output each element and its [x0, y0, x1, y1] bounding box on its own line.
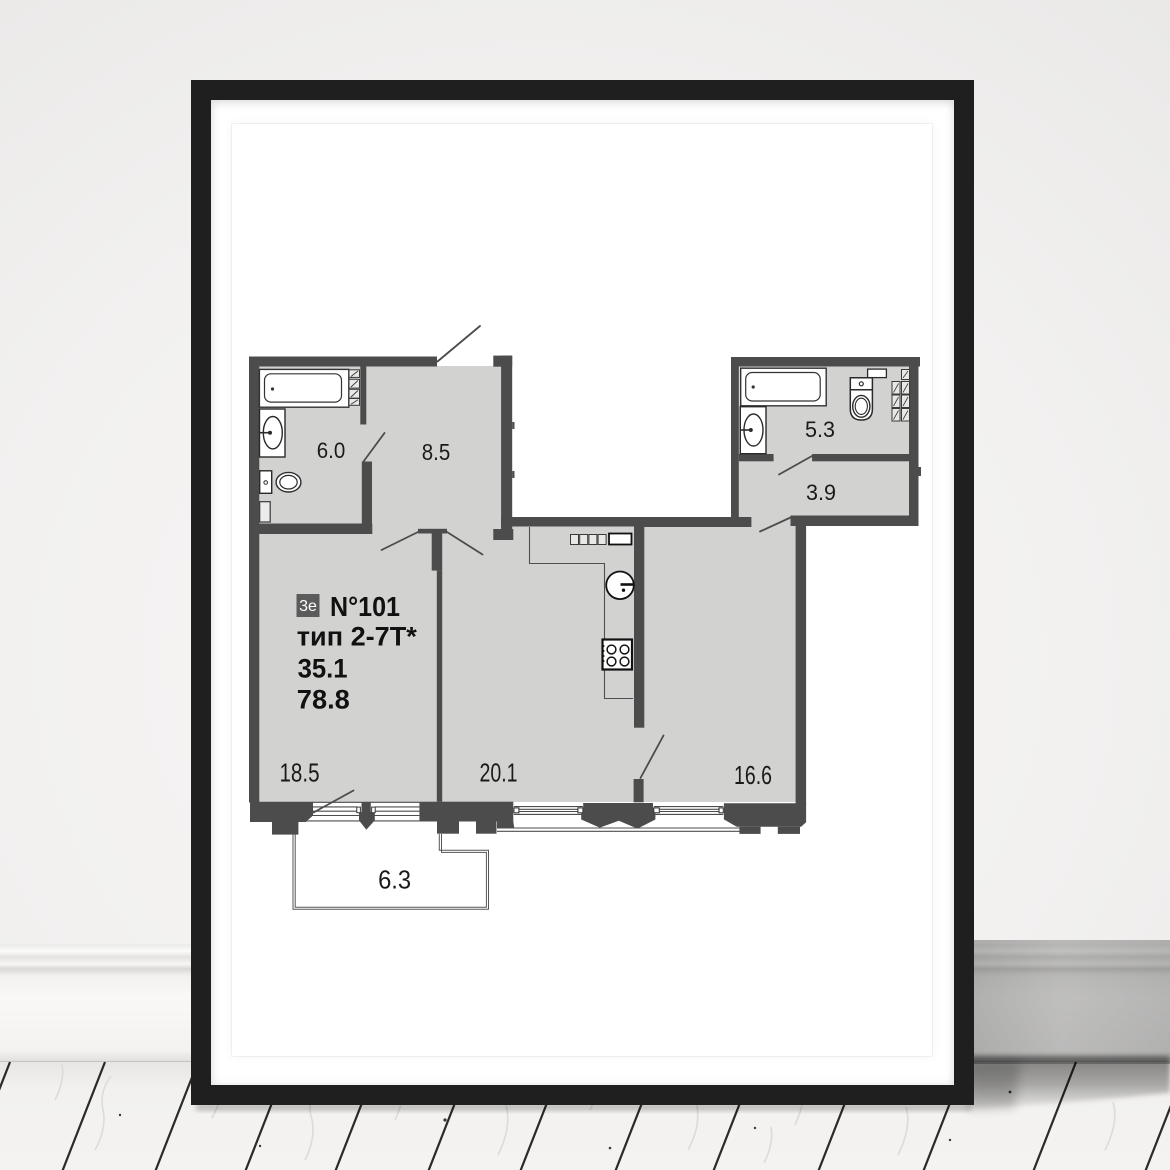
svg-text:18.5: 18.5: [280, 758, 320, 788]
svg-text:N°101: N°101: [330, 591, 400, 622]
svg-text:20.1: 20.1: [480, 758, 518, 788]
svg-text:8.5: 8.5: [422, 439, 451, 465]
svg-text:тип 2-7Т*: тип 2-7Т*: [297, 622, 417, 652]
svg-text:3.9: 3.9: [806, 480, 836, 505]
svg-text:6.0: 6.0: [317, 438, 346, 463]
svg-text:5.3: 5.3: [805, 417, 835, 442]
svg-text:6.3: 6.3: [378, 865, 411, 895]
svg-text:35.1: 35.1: [298, 654, 348, 684]
svg-text:78.8: 78.8: [297, 685, 350, 715]
svg-text:16.6: 16.6: [734, 760, 772, 790]
svg-text:3е: 3е: [299, 598, 317, 615]
